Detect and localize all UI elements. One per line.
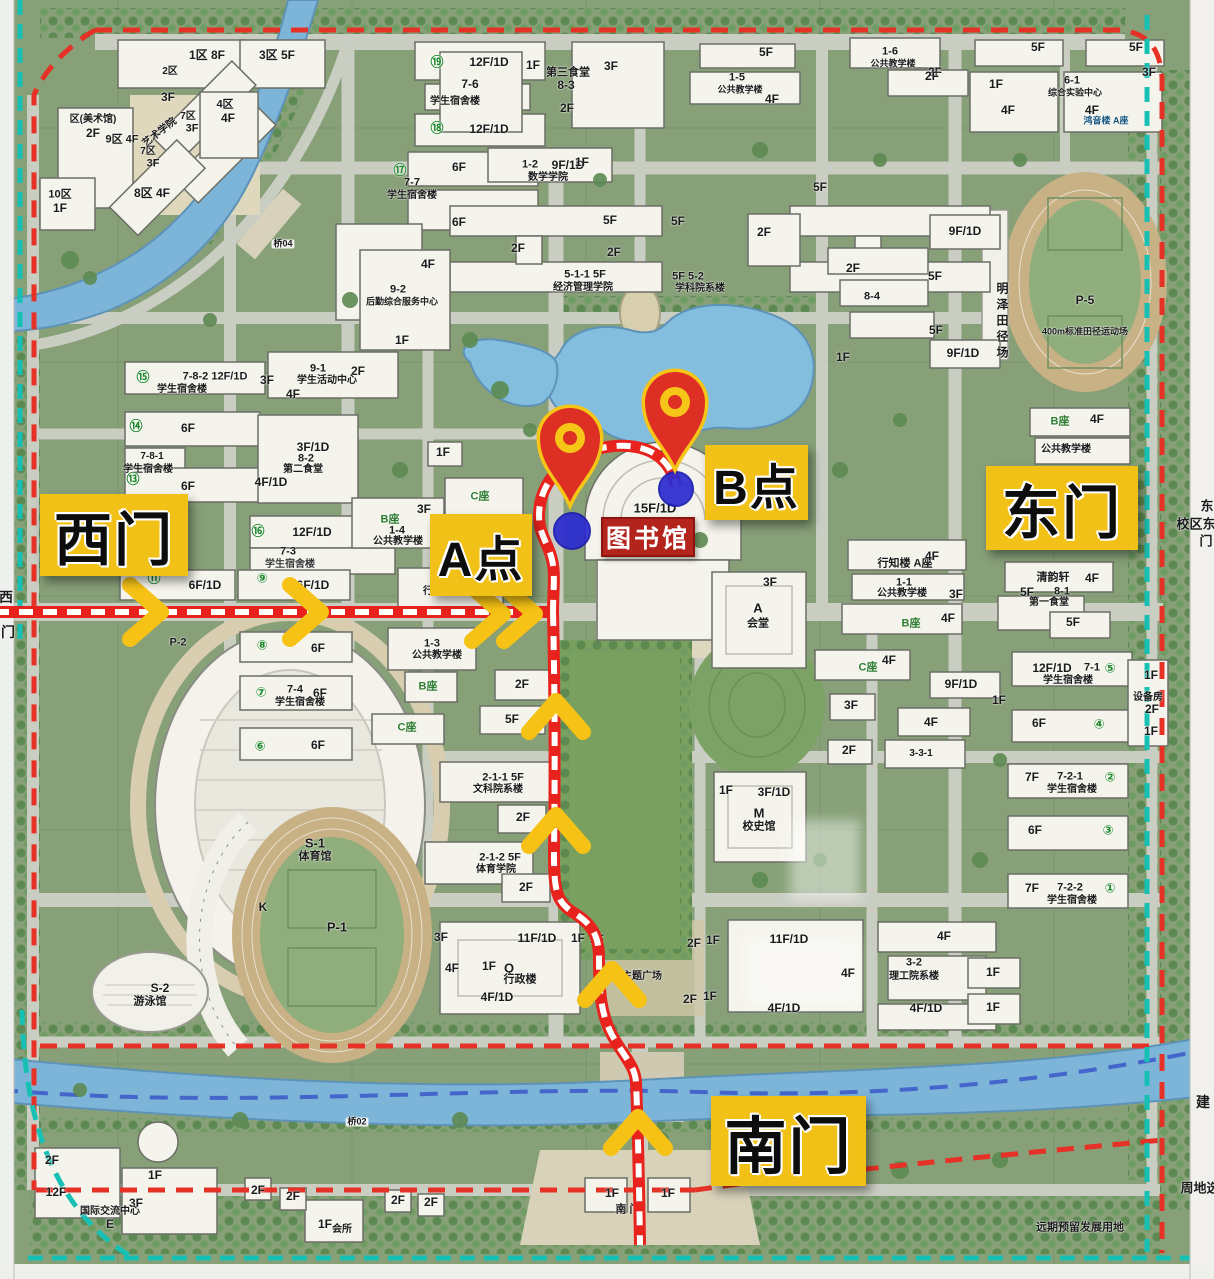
point-a-text: A点 xyxy=(438,520,525,590)
campus-map: 1区 8F2区3区 5F3F4区4F7区3F艺术学院区(美术馆)2F9区 4F7… xyxy=(0,0,1214,1279)
west-gate-text: 西门 xyxy=(54,493,174,577)
endpoint-dot-b xyxy=(659,472,693,506)
point-b-text: B点 xyxy=(713,448,800,518)
point-b-label: B点 xyxy=(705,445,808,520)
route-layer xyxy=(0,0,1214,1279)
south-gate-label: 南门 xyxy=(711,1096,866,1186)
point-a-label: A点 xyxy=(430,514,532,596)
route-arrow-up xyxy=(585,969,639,1000)
west-gate-label: 西门 xyxy=(40,494,188,576)
east-gate-label: 东门 xyxy=(986,466,1138,550)
south-gate-text: 南门 xyxy=(724,1096,852,1186)
east-gate-text: 东门 xyxy=(1002,466,1122,550)
endpoint-dot-a xyxy=(554,513,590,549)
library-tag: 图书馆 xyxy=(601,517,695,557)
library-tag-text: 图书馆 xyxy=(606,519,690,555)
